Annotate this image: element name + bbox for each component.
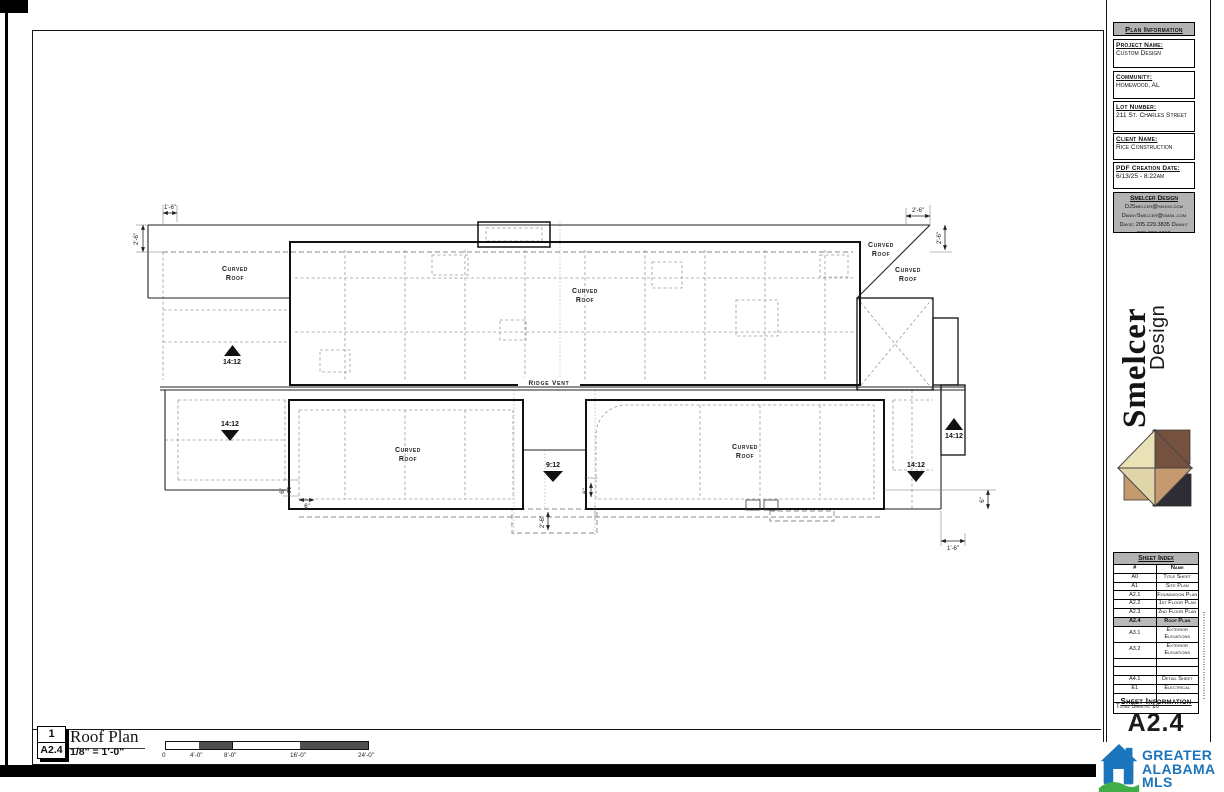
detail-number: 1: [38, 727, 65, 743]
scale-segment: [300, 742, 368, 749]
smelcer-design-logo: [1116, 428, 1194, 510]
scale-tick-label: 0: [162, 752, 166, 759]
dim-label: 6": [304, 504, 309, 510]
designer-email: DannySmelcer@gmail.com: [1122, 213, 1187, 219]
greater-alabama-mls-logo: GREATER ALABAMA MLS: [1096, 742, 1224, 792]
ridge-vent-label: Ridge Vent: [528, 380, 569, 387]
field-value: 211 St. Charles Street: [1116, 112, 1192, 121]
col-header-num: #: [1114, 565, 1157, 574]
scale-tick-label: 24'-0": [358, 752, 374, 759]
overhang-dashed-lines: [163, 252, 880, 533]
interior-walls-left: [163, 252, 290, 480]
designer-contact-card: Smelcer Design DJSmelcer@yahoo.com Danny…: [1113, 192, 1195, 233]
curved-roof-label: Curved: [895, 267, 921, 274]
sheet-index-title: Sheet Index: [1114, 553, 1199, 565]
dim-label: 2'-6": [134, 233, 140, 245]
brand-wordmark: Smelcer Design: [1118, 278, 1190, 428]
dim-label: 6": [980, 497, 986, 502]
sheet-num: E1: [1114, 684, 1157, 693]
slope-arrows: [221, 345, 963, 482]
sheet-num: A0: [1114, 573, 1157, 582]
curved-roof-label: Curved: [732, 444, 758, 451]
fine-print-vertical: [1203, 612, 1205, 700]
scale-segment: [199, 742, 233, 749]
sheet-num: A2.4: [1114, 617, 1157, 626]
sheet-name: Foundation Plan: [1156, 591, 1199, 600]
sheet-name: 2nd Floor Plan: [1156, 608, 1199, 617]
field-label: PDF Creation Date:: [1116, 165, 1192, 174]
col-header-name: Name: [1156, 565, 1199, 574]
curved-roof-label: Curved: [868, 242, 894, 249]
dim-label: 6": [280, 488, 286, 493]
sheet-index-row: E1Electrical: [1114, 684, 1199, 693]
detail-reference-box: 1 A2.4: [37, 726, 66, 759]
sheet-name: [1156, 658, 1199, 667]
sheet-num: A2.2: [1114, 600, 1157, 609]
mls-line: MLS: [1142, 776, 1216, 790]
sheet-num: [1114, 658, 1157, 667]
field-value: Homewood, AL: [1116, 82, 1192, 91]
slope-label: 14:12: [223, 359, 241, 366]
sheet-num: A3.2: [1114, 642, 1157, 658]
sheet-index-row: A0Title Sheet: [1114, 573, 1199, 582]
sheet-num: A2.3: [1114, 608, 1157, 617]
sheet-index-row-current: A2.4Roof Plan: [1114, 617, 1199, 626]
curved-roof-label: Roof: [872, 251, 890, 258]
field-label: Community:: [1116, 74, 1192, 83]
sheet-name: Electrical: [1156, 684, 1199, 693]
scale-tick-label: 4'-0": [190, 752, 203, 759]
extension-lines: [136, 205, 996, 546]
dim-label: 6": [583, 488, 589, 493]
scale-segment: [232, 742, 300, 749]
interior-walls-lower-mid: [299, 410, 513, 499]
mls-wordmark: GREATER ALABAMA MLS: [1142, 749, 1216, 790]
dim-label: 2'-6": [912, 208, 924, 214]
field-client-name: Client Name: Rice Construction: [1113, 133, 1195, 160]
sheet-index-row: [1114, 658, 1199, 667]
designer-name: Smelcer Design: [1130, 195, 1178, 202]
sheet-num: A1: [1114, 582, 1157, 591]
curved-roof-label: Curved: [395, 447, 421, 454]
field-value: Rice Construction: [1116, 144, 1192, 153]
field-pdf-date: PDF Creation Date: 6/13/25 - 8:22am: [1113, 162, 1195, 189]
field-project-name: Project Name: Custom Design: [1113, 39, 1195, 68]
brand-word-design: Design: [1147, 278, 1170, 370]
sheet-number: A2.4: [1110, 709, 1202, 738]
sheet-index-table: Sheet Index # Name A0Title Sheet A1Site …: [1113, 552, 1199, 714]
field-label: Project Name:: [1116, 42, 1192, 51]
mls-house-icon: [1098, 744, 1140, 792]
sheet-information-header: Sheet Information: [1110, 697, 1202, 706]
sheet-name: Title Sheet: [1156, 573, 1199, 582]
sheet-name: Site Plan: [1156, 582, 1199, 591]
curved-roof-label: Roof: [226, 275, 244, 282]
sheet-index-row: [1114, 667, 1199, 676]
scale-segment: [166, 742, 199, 749]
sheet-index-row: A4.1Detail Sheet: [1114, 676, 1199, 685]
curved-roof-label: Curved: [222, 266, 248, 273]
scale-tick-label: 16'-0": [290, 752, 306, 759]
sheet-index-row: A3.2Exterior Elevations: [1114, 642, 1199, 658]
plan-information-header: Plan Information: [1113, 22, 1195, 36]
sheet-num: [1114, 667, 1157, 676]
sheet-name: Exterior Elevations: [1156, 642, 1199, 658]
sheet-index-row: A2.1Foundation Plan: [1114, 591, 1199, 600]
curved-roof-label: Roof: [736, 453, 754, 460]
dim-label: 2'-6": [937, 232, 943, 244]
sheet-num: A2.1: [1114, 591, 1157, 600]
roof-outlines: [289, 222, 965, 509]
dim-label: 2'-6": [540, 516, 546, 528]
curved-roof-label: Roof: [399, 456, 417, 463]
interior-walls-upper: [295, 250, 855, 382]
field-label: Lot Number:: [1116, 104, 1192, 113]
field-value: 6/13/25 - 8:22am: [1116, 173, 1192, 182]
curved-roof-label: Curved: [572, 288, 598, 295]
field-community: Community: Homewood, AL: [1113, 71, 1195, 99]
designer-email: DJSmelcer@yahoo.com: [1125, 204, 1183, 210]
sheet-name: Detail Sheet: [1156, 676, 1199, 685]
detail-sheet-ref: A2.4: [38, 743, 65, 758]
interior-walls-right: [857, 298, 933, 509]
sheet-name: Exterior Elevations: [1156, 626, 1199, 642]
sheet-num: A4.1: [1114, 676, 1157, 685]
slope-label: 14:12: [945, 433, 963, 440]
roof-plan-drawing: Curved Roof Curved Roof Curved Roof Curv…: [0, 0, 1224, 792]
dim-label: 1'-6": [947, 546, 959, 552]
sheet-index-row: A1Site Plan: [1114, 582, 1199, 591]
sheet-name: Roof Plan: [1156, 617, 1199, 626]
interior-walls-lower-right: [596, 405, 874, 499]
sheet-index-row: A3.1Exterior Elevations: [1114, 626, 1199, 642]
dim-label: 1'-6": [164, 205, 176, 211]
slope-label: 14:12: [907, 462, 925, 469]
curved-roof-label: Roof: [899, 276, 917, 283]
field-lot-number: Lot Number: 211 St. Charles Street: [1113, 101, 1195, 132]
drawing-scale: 1/8" = 1'-0": [70, 746, 124, 758]
field-value: Custom Design: [1116, 50, 1192, 59]
designer-phone: David: 205.229.3835: [1120, 222, 1170, 228]
scale-tick-label: 8'-0": [224, 752, 237, 759]
curved-roof-label: Roof: [576, 297, 594, 304]
sheet-name: [1156, 667, 1199, 676]
graphic-scale-bar: [165, 741, 369, 750]
slope-label: 9:12: [546, 462, 560, 469]
sheet-num: A3.1: [1114, 626, 1157, 642]
field-label: Client Name:: [1116, 136, 1192, 145]
sheet-index-row: A2.21st Floor Plan: [1114, 600, 1199, 609]
slope-label: 14:12: [221, 421, 239, 428]
sheet-index-row: A2.32nd Floor Plan: [1114, 608, 1199, 617]
sheet-name: 1st Floor Plan: [1156, 600, 1199, 609]
